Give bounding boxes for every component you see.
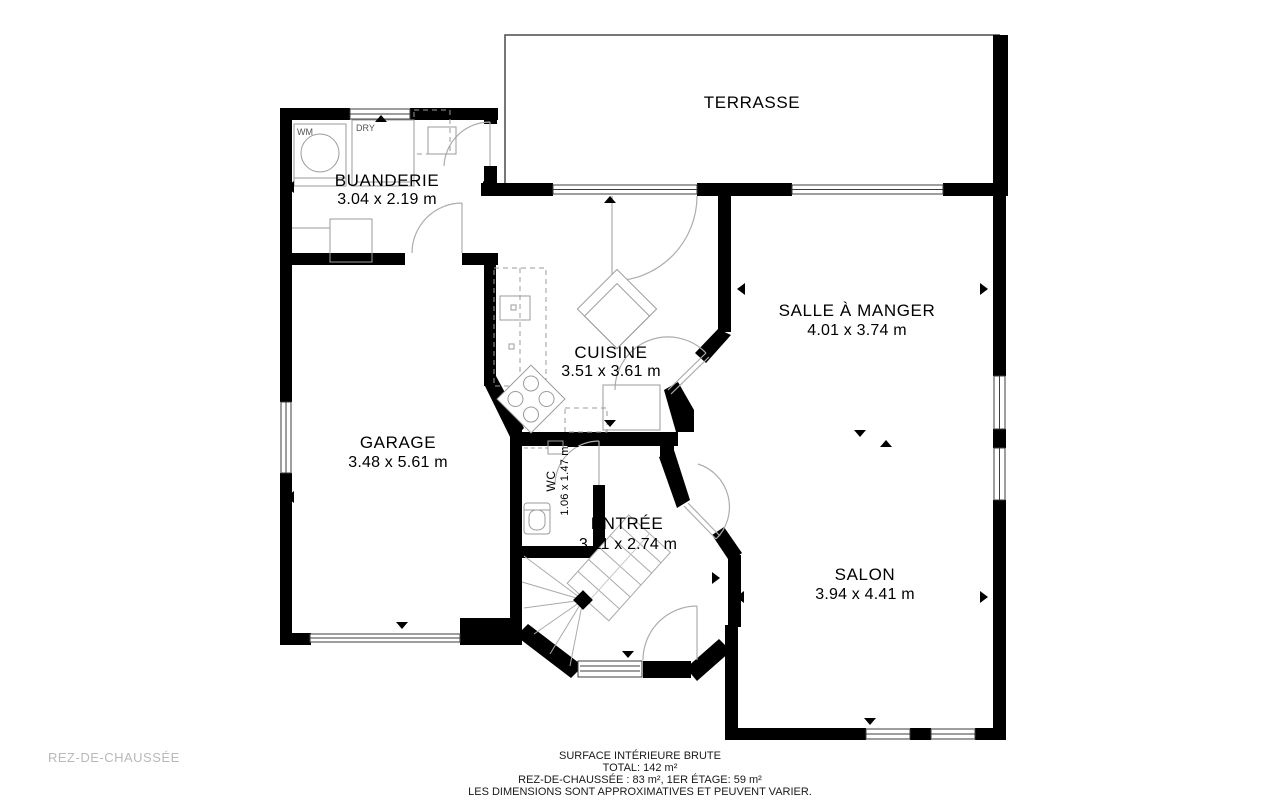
room-dims-garage: 3.48 x 5.61 m: [348, 454, 448, 472]
door-buanderie-garage: [412, 203, 462, 253]
door-terrace: [612, 196, 697, 281]
room-dims-salle-a-manger: 4.01 x 3.74 m: [807, 322, 907, 340]
garage-door: [310, 634, 460, 642]
marker-dining-left: [737, 283, 745, 295]
footer-disclaimer: LES DIMENSIONS SONT APPROXIMATIVES ET PE…: [468, 786, 812, 798]
svg-text:DRY: DRY: [356, 123, 375, 133]
window-salon-east: [994, 448, 1005, 500]
room-label-wc: WC 1.06 x 1.47 m: [544, 446, 572, 515]
door-buanderie: [444, 122, 490, 166]
room-label-cuisine: CUISINE: [574, 343, 647, 363]
marker-garage-door: [396, 622, 408, 629]
window-garage-west: [281, 402, 291, 473]
marker-cuisine-south: [604, 420, 616, 427]
room-label-garage: GARAGE: [360, 433, 436, 453]
marker-dining-right: [980, 283, 988, 295]
door-front: [643, 606, 697, 660]
footer-surface-title: SURFACE INTÉRIEURE BRUTE: [559, 750, 721, 762]
marker-salon-east: [980, 591, 988, 603]
marker-front-door: [622, 651, 634, 658]
footer-total-area: TOTAL: 142 m²: [603, 762, 678, 774]
door-entree-dining: [684, 464, 729, 539]
kitchen-sink-cabinet: [500, 296, 530, 320]
room-label-salon: SALON: [835, 565, 896, 585]
room-dims-buanderie: 3.04 x 2.19 m: [337, 191, 437, 209]
marker-dining-down: [854, 430, 866, 437]
window-salon-south-1: [866, 729, 910, 739]
window-dining-east: [994, 376, 1005, 429]
room-dims-cuisine: 3.51 x 3.61 m: [561, 363, 661, 381]
room-label-buanderie: BUANDERIE: [335, 171, 440, 191]
room-dims-salon: 3.94 x 4.41 m: [815, 586, 915, 604]
footer-area-breakdown: REZ-DE-CHAUSSÉE : 83 m², 1ER ÉTAGE: 59 m…: [518, 774, 762, 786]
window-salon-south-2: [931, 729, 975, 739]
marker-salon-south: [864, 718, 876, 725]
dishwasher-dashed: [565, 408, 607, 432]
room-dims-entree: 3.11 x 2.74 m: [579, 536, 677, 554]
winder-treads: [522, 556, 583, 666]
svg-text:WM: WM: [297, 127, 313, 137]
sliding-door-terrace-1: [553, 185, 697, 194]
floor-plan-drawing: WM DRY: [0, 0, 1280, 800]
floor-level-tag: REZ-DE-CHAUSSÉE: [48, 750, 180, 765]
marker-terrace-door: [604, 196, 616, 203]
sliding-door-terrace-2: [792, 185, 943, 194]
floor-plan-canvas: WM DRY: [0, 0, 1280, 800]
marker-dining-up: [880, 440, 892, 447]
room-label-entree: ENTRÉE: [591, 514, 664, 534]
room-label-terrasse: TERRASSE: [704, 93, 800, 113]
front-door-threshold: [578, 661, 642, 677]
marker-entree-east: [712, 572, 720, 584]
room-label-salle-a-manger: SALLE À MANGER: [779, 301, 936, 321]
kitchen-island: [577, 269, 656, 348]
laundry-unit: [428, 127, 456, 154]
